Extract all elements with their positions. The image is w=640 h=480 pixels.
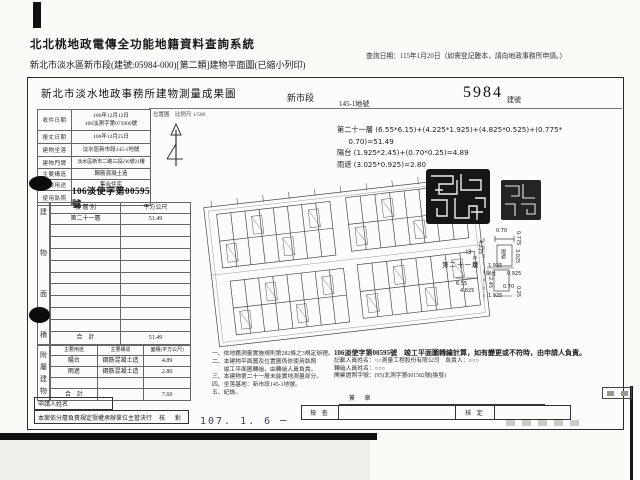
faint-stamp-marks [506, 420, 586, 426]
dimension-label: 0.25 [515, 286, 520, 297]
note-line: 一、依地籍測量實施規則第282條之3規定辦理。 [212, 351, 337, 359]
scan-blob [29, 307, 50, 323]
unit-id: I3 [466, 249, 472, 256]
notes-left: 一、依地籍測量實施規則第282條之3規定辦理。二、本建物平面圖及位置圖係依使用執… [212, 351, 337, 398]
doc-title: 新北市淡水地政事務所建物測量成果圖 [41, 86, 237, 101]
table-row: 陽台鋼筋混凝土造4.89 [51, 356, 191, 367]
dimension-label: 4.825 [460, 289, 474, 294]
dimension-label: 1.925 [488, 264, 502, 269]
table-row: 建物坐落 淡水區新市段145-1地號 [37, 144, 151, 157]
empty-cell [339, 406, 456, 419]
signature-label: 簽 章 [349, 393, 375, 402]
dimension-label: 0.775 [515, 231, 520, 245]
table-cell [51, 248, 121, 260]
table-row: 複丈日期 106年12月25日 [37, 131, 151, 144]
system-title: 北北桃地政電傳全功能地籍資料查詢系統 [30, 36, 255, 52]
small-stamp-box [602, 387, 632, 399]
scan-artifact [33, 2, 41, 28]
table-row: 收件日期 106年12月12日106淡測字第073900號 [37, 109, 151, 131]
side-label-char: 物 [40, 386, 47, 396]
table-cell: 2.80 [144, 367, 191, 378]
official-seal-stamps [425, 168, 545, 230]
table-row: 主要構造 鋼筋混凝土造 [37, 169, 151, 180]
table-cell [144, 378, 191, 389]
side-label-char: 附 [40, 350, 47, 360]
empty-cell [495, 406, 570, 419]
table-cell [51, 378, 98, 389]
side-label-char: 物 [40, 248, 47, 258]
building-number-label: 建號 [507, 95, 521, 105]
note-line: 五、紀錄。 [212, 390, 337, 398]
table-row: 建物門牌 淡水區新市二路三段236號21樓 [37, 157, 151, 169]
approval-box: 本案依分層負責規定授權承辦單位主管決行 核 對 [34, 410, 189, 424]
side-label-char: 屬 [40, 362, 47, 372]
scanned-cadastral-query-page: 北北桃地政電傳全功能地籍資料查詢系統 查詢日期：115年1月20日（如需登記謄本… [0, 0, 640, 480]
floor-area-side-label: 建物面積 [37, 202, 50, 345]
table-cell: 鋼筋混凝土造 [97, 367, 144, 378]
column-header: 主要用途 [51, 346, 98, 356]
table-row: 雨遮鋼筋混凝土造2.80 [51, 367, 191, 378]
table-cell [51, 308, 121, 320]
scan-blob [29, 176, 52, 191]
side-label-char: 積 [40, 330, 47, 340]
table-cell [51, 272, 121, 284]
note-line: 二、本建物平面圖及位置圖係依使用執照 [212, 359, 337, 367]
page-subtitle: 新北市淡水區新市段(建號:05984-000)[第二類]建物平面圖(已縮小列印) [30, 58, 305, 71]
table-cell: 7.69 [144, 389, 191, 401]
dimension-label: 4.225 [477, 240, 482, 254]
table-cell: 陽台 [51, 356, 98, 367]
note-line: 四、坐落基地：新市段145-1地號。 [212, 382, 337, 390]
side-label-char: 建 [40, 207, 47, 217]
table-cell [51, 296, 121, 308]
side-label-char: 建 [40, 374, 47, 384]
note-line: 記載人員姓名：○○測量工程股份有限公司 負責人：○○○ [334, 358, 574, 366]
row-label: 建物坐落 [38, 144, 72, 156]
scan-artifact [630, 386, 633, 480]
building-info-table: 收件日期 106年12月12日106淡測字第073900號 複丈日期 106年1… [37, 109, 151, 206]
table-cell [51, 320, 121, 332]
inspect-cell: 檢 查 [302, 406, 339, 419]
side-label-char: 面 [40, 289, 47, 299]
approve-cell: 核 定 [456, 406, 495, 419]
row-label: 複丈日期 [38, 131, 72, 143]
review-row: 檢 查 核 定 [301, 405, 571, 420]
scan-artifact [0, 433, 377, 440]
applicant-name-box: 申請人姓名 [34, 397, 113, 410]
table-cell: 鋼筋混凝土造 [97, 356, 144, 367]
table-cell [51, 225, 121, 237]
received-date-stamp: 107. 1. 6 ─ [200, 416, 288, 427]
dimension-label: 6.15 [471, 256, 476, 267]
dimension-label: 3.025 [514, 249, 519, 263]
dimension-label: 0.70 [503, 285, 514, 290]
note-line: 106淡使字第00595號 竣工平面圖轉繪計算，如有變更或不符時，由申請人負責。 [334, 350, 574, 358]
table-cell [97, 378, 144, 389]
row-label: 收件日期 [38, 110, 72, 130]
row-label: 建物門牌 [38, 157, 72, 168]
table-cell: 第二十一層 [51, 214, 121, 225]
empty-row [51, 378, 191, 389]
dimension-label: 0.925 [507, 272, 521, 277]
dimension-label: 雨遮 [500, 249, 505, 259]
table-cell [51, 284, 121, 296]
table-cell [51, 260, 121, 272]
annex-side-label: 附屬建物 [37, 345, 50, 401]
note-line: 開業證照字號：(95)北測字第001582號(換發) [334, 373, 574, 381]
dimension-label: 6.55 [456, 282, 467, 287]
table-cell: 合 計 [51, 332, 121, 345]
site-plan-drawing [150, 108, 625, 348]
annex-table: 主要用途主要構造面積(平方公尺)陽台鋼筋混凝土造4.89雨遮鋼筋混凝土造2.80… [50, 345, 191, 401]
query-date-note: 查詢日期：115年1月20日（如需登記謄本，請向地政事務所申請。） [366, 50, 566, 60]
table-cell [51, 236, 121, 248]
building-number: 5984 [463, 84, 503, 102]
scan-artifact [0, 440, 370, 480]
table-cell: 4.89 [144, 356, 191, 367]
dimension-label: 1.925 [488, 294, 502, 299]
column-header: 主要構造 [97, 346, 144, 356]
notes-right: 106淡使字第00595號 竣工平面圖轉繪計算，如有變更或不符時，由申請人負責。… [334, 350, 574, 381]
section-name: 新市段 [287, 91, 314, 104]
table-cell: 雨遮 [51, 367, 98, 378]
column-header: 樓 層 別 [51, 203, 121, 214]
dimension-label: 2.45 [487, 277, 492, 288]
